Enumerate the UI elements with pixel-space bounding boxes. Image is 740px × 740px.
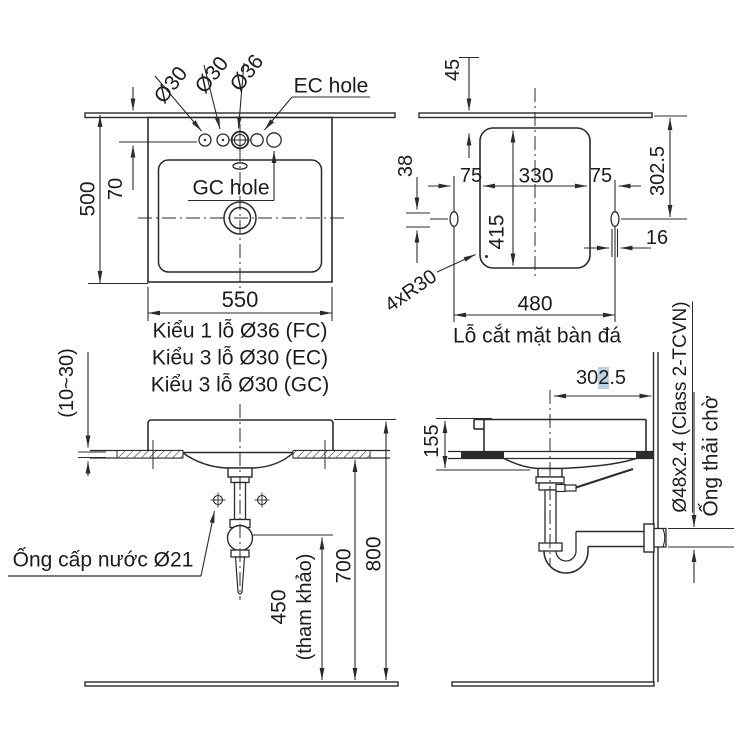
dim-counter-thickness: (10~30)	[57, 348, 77, 418]
dim-width-550: 550	[222, 289, 259, 311]
supply-pipe-label: Ống cấp nước Ø21	[13, 550, 194, 571]
dim-rim-800: 800	[364, 536, 385, 571]
dim-drain-offset-302-5: 302.5	[576, 368, 626, 388]
dim-margin-right-75: 75	[590, 166, 612, 186]
dim-wall-gap-16: 16	[646, 228, 668, 248]
note-line-1: Kiểu 1 lỗ Ø36 (FC)	[152, 321, 327, 342]
dim-supply-note: (tham khảo)	[295, 554, 315, 661]
dim-rear-offset-302-5: 302.5	[648, 146, 668, 196]
dim-front-offset-45: 45	[443, 59, 463, 81]
gc-hole-label: GC hole	[192, 178, 269, 199]
drain-pipe-spec-label: Ø48x2.4 (Class 2-TCVN)	[671, 301, 693, 512]
note-line-3: Kiểu 3 lỗ Ø30 (GC)	[151, 375, 330, 396]
cutout-caption: Lỗ cắt mặt bàn đá	[453, 326, 621, 347]
dim-margin-left-75: 75	[460, 166, 482, 186]
dim-hole-span-480: 480	[517, 294, 552, 315]
installation-drawing: Ø30 Ø30 Ø36 EC hole GC hole 500 70 550 K…	[0, 0, 740, 740]
dim-part: 30	[576, 367, 598, 389]
waste-pipe-label: Ống thải chờ	[701, 395, 722, 516]
dim-inner-width-330: 330	[518, 166, 553, 187]
dim-hole-offset-70: 70	[106, 178, 126, 200]
dim-slot-38: 38	[396, 155, 416, 177]
ec-hole-label: EC hole	[294, 76, 369, 97]
dim-counter-700: 700	[334, 548, 355, 583]
drawing-linework	[0, 0, 740, 740]
dim-part-highlighted: 2	[598, 367, 609, 389]
dim-supply-450: 450	[269, 589, 290, 624]
note-line-2: Kiểu 3 lỗ Ø30 (EC)	[152, 348, 328, 369]
dim-depth-500: 500	[78, 181, 99, 216]
dim-basin-height-155: 155	[422, 424, 442, 457]
dim-inner-height-415: 415	[487, 214, 508, 249]
dim-part: .5	[609, 367, 626, 389]
